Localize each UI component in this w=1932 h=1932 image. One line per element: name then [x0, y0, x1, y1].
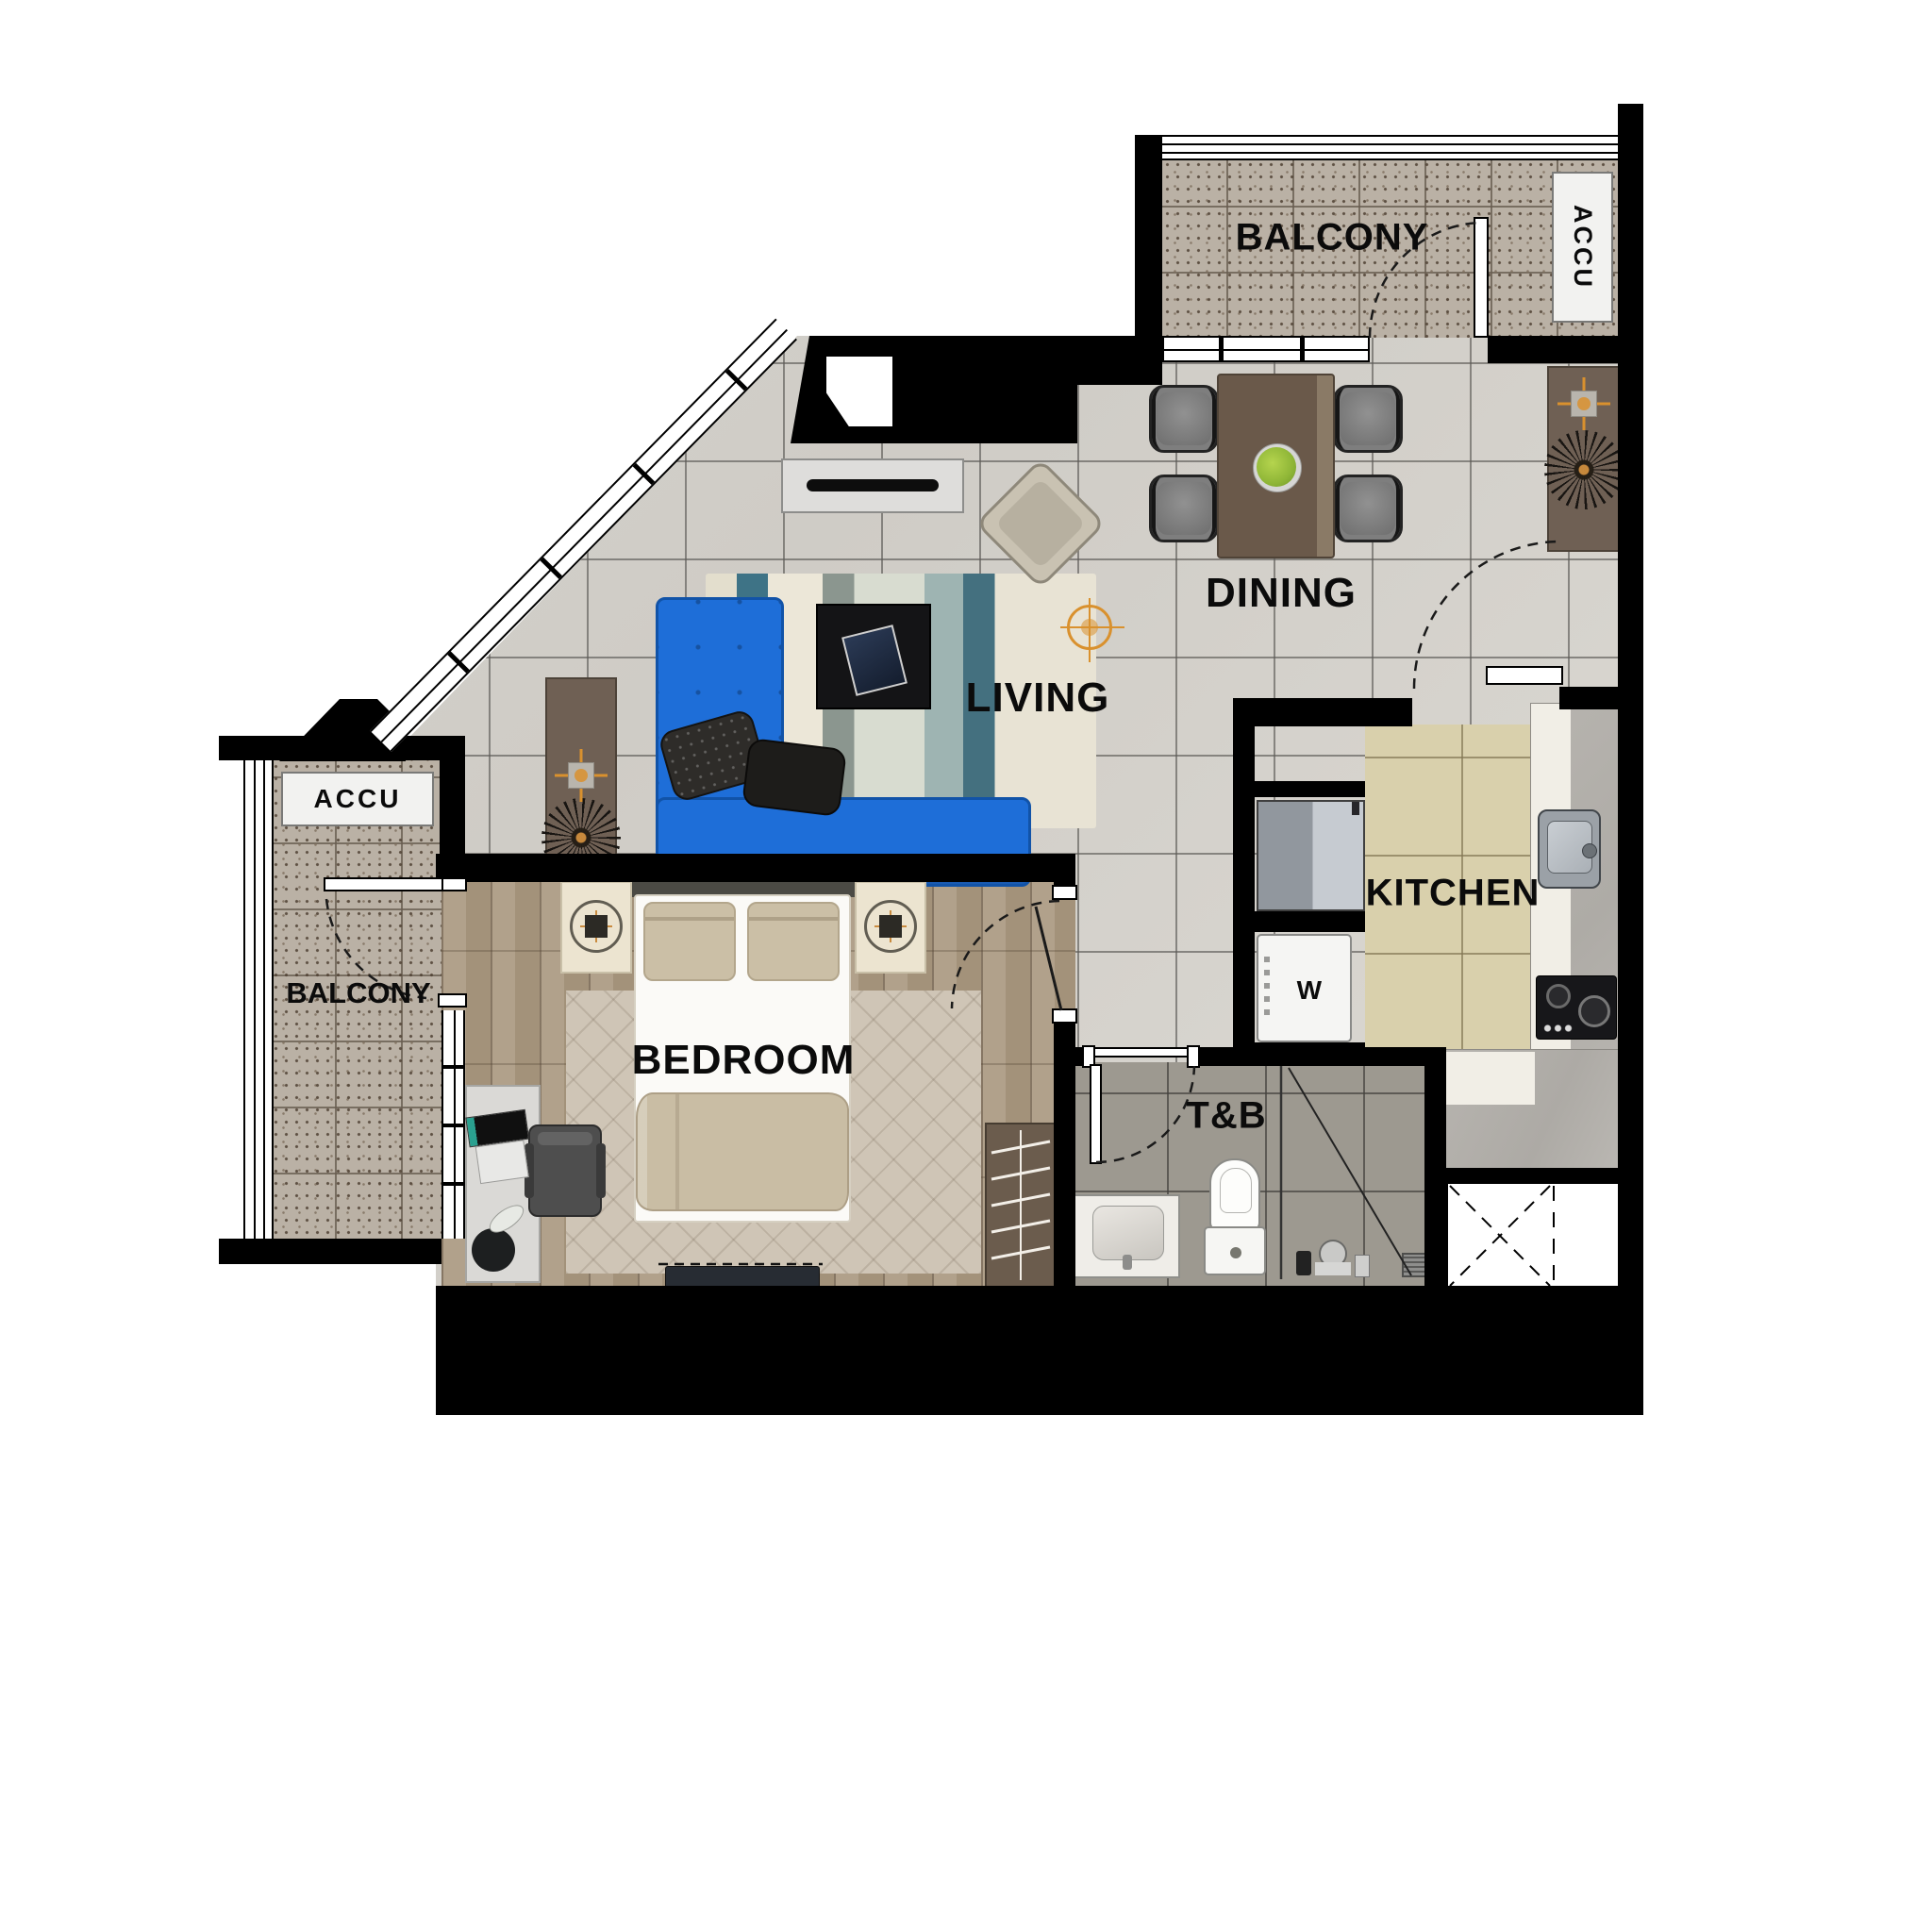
wall-balcony-top-pier: [1135, 135, 1162, 362]
refrigerator: [1257, 800, 1365, 911]
window-mullion: [1300, 338, 1305, 360]
cooktop-stove: [1536, 975, 1617, 1040]
shower-handle: [1315, 1262, 1351, 1275]
stove-knobs: [1542, 1024, 1574, 1033]
wall-niche-bottom: [1233, 1042, 1365, 1066]
balcony-top-label: BALCONY: [1236, 217, 1429, 259]
shower-drain: [1402, 1253, 1426, 1277]
dining-table: [1217, 374, 1335, 558]
wall-niche-mid: [1233, 911, 1365, 932]
accu-box-left: ACCU: [281, 772, 434, 826]
window-mullion: [725, 369, 747, 391]
shower-accessory: [1296, 1251, 1311, 1275]
bathroom-vanity: [1074, 1194, 1180, 1278]
toilet-tank: [1204, 1226, 1266, 1275]
wall-kitchen-north: [1255, 698, 1412, 726]
accu-left-label: ACCU: [314, 784, 402, 814]
washing-machine: W: [1257, 934, 1352, 1042]
window-mullion: [443, 1065, 463, 1069]
jamb-bedroom-door-top: [1052, 885, 1077, 900]
coffee-table: [816, 604, 931, 709]
wall-bottom-band: [436, 1286, 1643, 1415]
jamb-tb-door-right: [1187, 1045, 1200, 1068]
railing-balcony-left: [243, 760, 274, 1239]
bedroom-label: BEDROOM: [632, 1037, 856, 1084]
floor-plan-canvas: W: [0, 0, 1932, 1932]
ceiling-light-crosshair-icon: [1557, 377, 1610, 430]
kitchen-door-leaf: [1486, 666, 1563, 685]
dining-chair: [1333, 385, 1403, 453]
window-mullion: [447, 651, 469, 673]
accu-box-top: ACCU: [1552, 172, 1613, 323]
desk-decor-dish: [472, 1228, 515, 1272]
fridge-handle: [1352, 802, 1359, 815]
wall-balcony-top-right: [1488, 336, 1620, 363]
vanity-faucet: [1123, 1255, 1132, 1270]
washer-controls: [1264, 949, 1270, 1015]
accu-top-label: ACCU: [1568, 205, 1597, 290]
tb-door-leaf: [1090, 1064, 1102, 1164]
balcony-left-door-leaf: [324, 877, 443, 891]
burner: [1546, 984, 1571, 1008]
sofa-pillow: [741, 738, 847, 817]
dining-chair: [1149, 475, 1219, 542]
dining-chair: [1333, 475, 1403, 542]
laptop: [465, 1109, 532, 1185]
wall-niche-top: [1233, 781, 1365, 797]
toilet-bowl: [1209, 1158, 1260, 1232]
wall-east: [1618, 104, 1643, 1415]
ceiling-light-target-icon: [1067, 605, 1112, 650]
vanity-bowl: [1092, 1206, 1164, 1260]
desk-chair: [528, 1124, 602, 1217]
ceiling-light-crosshair-icon: [555, 749, 608, 802]
wall-entry: [764, 336, 1077, 443]
nightstand-lamp: [570, 900, 623, 953]
kitchen-label: KITCHEN: [1366, 873, 1541, 915]
magazine: [841, 625, 908, 696]
window-mullion: [1219, 338, 1224, 360]
wardrobe-hangers-icon: [987, 1124, 1055, 1286]
bed-blanket: [636, 1092, 849, 1211]
wall-balcony-left-east: [440, 736, 465, 879]
jamb-balcony-left-door-bottom: [438, 993, 467, 1008]
living-label: LIVING: [966, 675, 1110, 722]
railing-balcony-top: [1162, 135, 1618, 160]
balcony-left-label: BALCONY: [286, 976, 430, 1010]
wall-kitchen-west: [1233, 698, 1255, 1050]
tv-console: [781, 458, 964, 513]
nightstand-lamp: [864, 900, 917, 953]
window-bedroom-west: [441, 1010, 465, 1239]
tb-door-header: [1093, 1047, 1189, 1058]
kitchen-sink: [1538, 809, 1601, 889]
accent-chair-seat: [995, 478, 1086, 569]
centerpiece-greens: [1257, 447, 1296, 487]
wardrobe: [985, 1123, 1057, 1288]
wall-balcony-left-bottom: [219, 1239, 441, 1264]
window-mullion: [633, 463, 655, 485]
toilet-bath-label: T&B: [1186, 1095, 1266, 1138]
window-mullion: [443, 1124, 463, 1127]
bed-pillow: [643, 902, 736, 981]
window-mullion: [540, 558, 561, 579]
washer-label: W: [1297, 975, 1323, 1006]
counter-inner-edge-2: [1446, 1052, 1535, 1105]
jamb-bedroom-door-bottom: [1052, 1008, 1077, 1024]
wall-counter-bottom: [1441, 1168, 1620, 1184]
tv-screen: [807, 479, 939, 491]
balcony-top-door-leaf: [1474, 217, 1489, 338]
wall-kitchen-north-right: [1559, 687, 1620, 709]
starburst-decor-icon: [1544, 430, 1624, 509]
window-sliding-dining: [1162, 336, 1370, 362]
bed-pillow: [747, 902, 840, 981]
shower-handle: [1355, 1255, 1370, 1277]
burner: [1578, 995, 1610, 1027]
shaft-cross-box: [1446, 1182, 1620, 1290]
dining-chair: [1149, 385, 1219, 453]
wall-bedroom-north: [436, 854, 1075, 882]
dining-label: DINING: [1206, 570, 1357, 617]
sink-faucet: [1582, 843, 1597, 858]
window-mullion: [443, 1182, 463, 1186]
kitchen-counter-bottom: [1441, 1049, 1621, 1170]
